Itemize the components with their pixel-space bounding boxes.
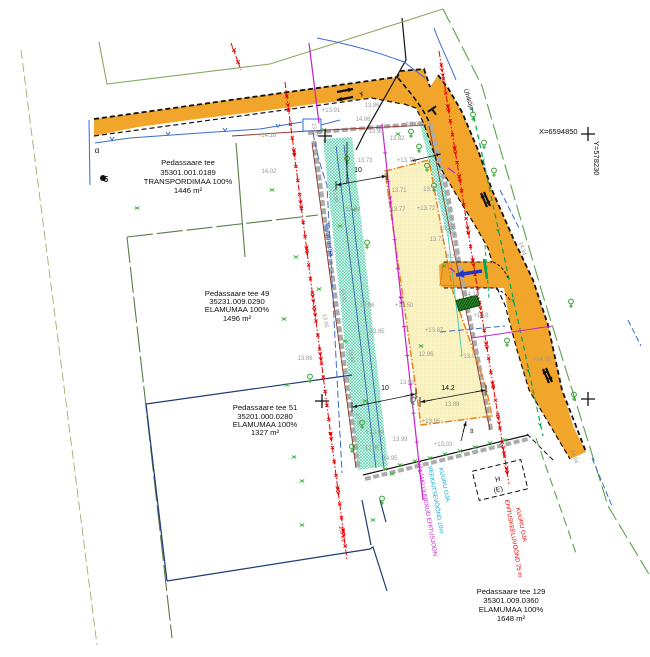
svg-text:+13.04: +13.04 bbox=[460, 354, 479, 360]
svg-text:13.94: 13.94 bbox=[345, 207, 361, 213]
svg-text:+14.02: +14.02 bbox=[533, 357, 552, 363]
svg-text:+13.94: +13.94 bbox=[366, 430, 385, 436]
svg-text:ELAMUMAA 100%: ELAMUMAA 100% bbox=[479, 605, 544, 614]
svg-text:Pedassaare tee 129: Pedassaare tee 129 bbox=[477, 587, 546, 596]
svg-text:Ø13.8: Ø13.8 bbox=[445, 254, 459, 260]
svg-text:+14.16: +14.16 bbox=[258, 133, 277, 139]
svg-text:m: m bbox=[468, 428, 474, 433]
svg-text:13.96: 13.96 bbox=[359, 303, 375, 309]
svg-text:35301.001.0189: 35301.001.0189 bbox=[160, 168, 216, 177]
svg-text:5: 5 bbox=[104, 175, 109, 184]
svg-text:+13.87: +13.87 bbox=[425, 328, 444, 334]
svg-text:13.71: 13.71 bbox=[391, 188, 407, 194]
svg-text:+13.72: +13.72 bbox=[417, 206, 436, 212]
svg-text:13.84: 13.84 bbox=[439, 226, 455, 232]
svg-text:ELAMUMAA 100%: ELAMUMAA 100% bbox=[205, 305, 270, 314]
svg-text:13.90: 13.90 bbox=[368, 129, 384, 135]
svg-text:13.85: 13.85 bbox=[364, 446, 380, 452]
svg-text:35301.009.0360: 35301.009.0360 bbox=[483, 596, 539, 605]
svg-text:14.95: 14.95 bbox=[382, 456, 398, 462]
svg-text:+13.03: +13.03 bbox=[434, 442, 453, 448]
svg-text:13.71: 13.71 bbox=[429, 237, 445, 243]
svg-text:+13.91: +13.91 bbox=[322, 108, 341, 114]
svg-text:+14.18: +14.18 bbox=[461, 292, 480, 298]
svg-text:+13.95: +13.95 bbox=[422, 419, 441, 425]
svg-text:+13.50: +13.50 bbox=[395, 303, 414, 309]
svg-text:13.82: 13.82 bbox=[389, 136, 405, 142]
svg-text:13.77: 13.77 bbox=[390, 207, 406, 213]
svg-text:1327 m²: 1327 m² bbox=[251, 428, 280, 437]
svg-text:13.88: 13.88 bbox=[444, 402, 460, 408]
svg-text:13.86: 13.86 bbox=[297, 356, 313, 362]
svg-text:1496 m²: 1496 m² bbox=[223, 314, 252, 323]
svg-text:Pedassaare tee: Pedassaare tee bbox=[161, 158, 215, 167]
svg-text:+13.93: +13.93 bbox=[403, 122, 422, 128]
svg-text:+13.70: +13.70 bbox=[397, 158, 416, 164]
svg-text:13.98: 13.98 bbox=[399, 380, 415, 386]
svg-text:10: 10 bbox=[381, 385, 389, 392]
svg-text:TRANSPORDIMAA 100%: TRANSPORDIMAA 100% bbox=[144, 177, 233, 186]
svg-text:13.86: 13.86 bbox=[364, 103, 380, 109]
svg-text:1648 m²: 1648 m² bbox=[497, 614, 526, 623]
svg-text:13.85: 13.85 bbox=[369, 329, 385, 335]
svg-text:+13.8: +13.8 bbox=[473, 313, 489, 319]
svg-text:12.96: 12.96 bbox=[418, 352, 434, 358]
svg-text:14.02: 14.02 bbox=[261, 169, 277, 175]
svg-text:Y=578230: Y=578230 bbox=[592, 141, 601, 175]
svg-text:Pedassaare tee 51: Pedassaare tee 51 bbox=[233, 403, 298, 412]
svg-text:α: α bbox=[95, 146, 100, 155]
svg-text:13.73: 13.73 bbox=[357, 158, 373, 164]
svg-text:13.7: 13.7 bbox=[423, 187, 435, 193]
svg-text:14.2: 14.2 bbox=[441, 385, 455, 392]
svg-text:14.06: 14.06 bbox=[355, 117, 371, 123]
svg-text:1446 m²: 1446 m² bbox=[174, 186, 203, 195]
svg-text:10: 10 bbox=[354, 167, 362, 174]
svg-text:13.99: 13.99 bbox=[392, 437, 408, 443]
svg-text:X=6594850: X=6594850 bbox=[539, 127, 578, 136]
